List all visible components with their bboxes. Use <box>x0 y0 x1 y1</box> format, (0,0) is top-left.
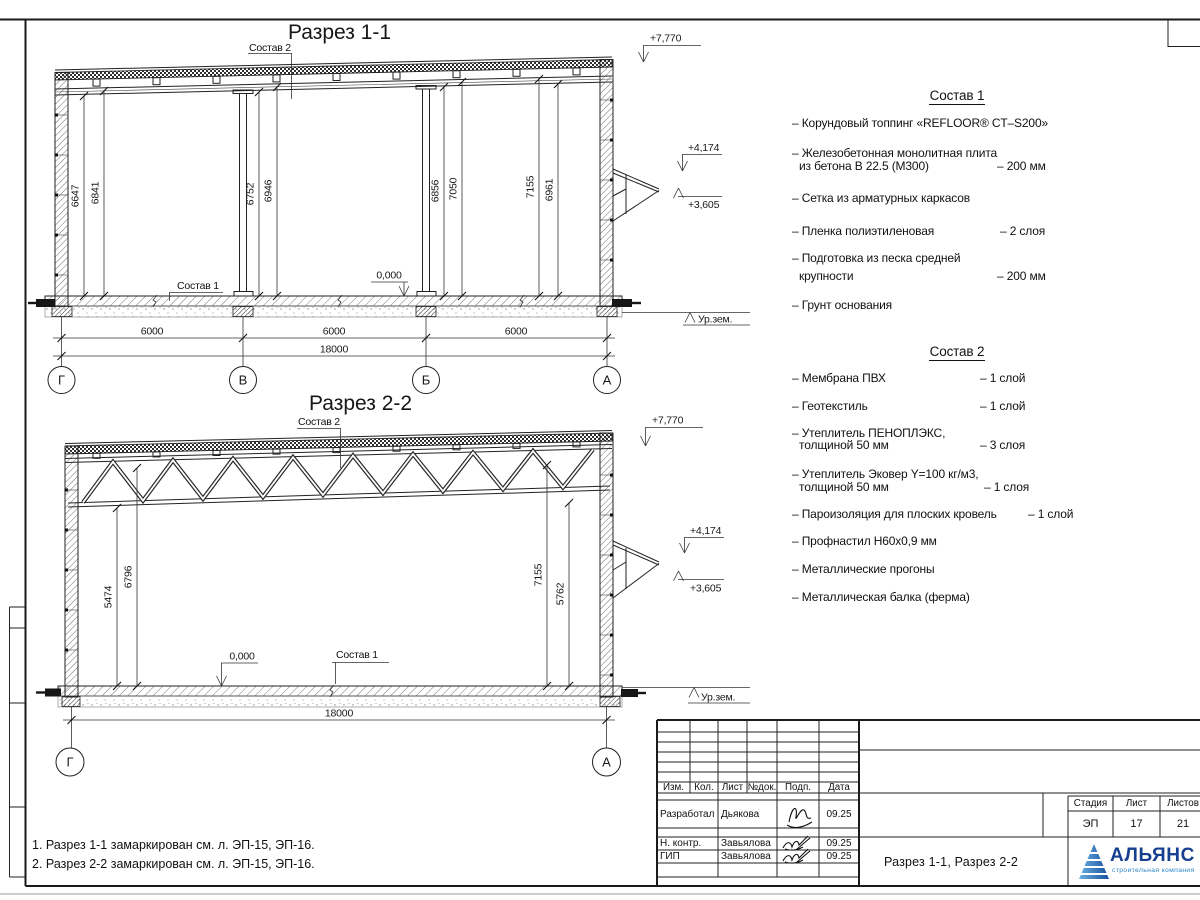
axis-letter: Г <box>58 373 65 388</box>
sand-base <box>58 696 622 707</box>
elevation-text: 0,000 <box>376 270 402 282</box>
axis-letter: Г <box>66 755 73 770</box>
axis-bubbles: Г А <box>56 748 621 776</box>
total-dim: 18000 <box>325 708 354 720</box>
elevation-text: +7,770 <box>652 415 684 427</box>
alliance-logo-icon <box>1078 843 1110 881</box>
total-dim: 18000 <box>320 344 349 356</box>
left-stamp-strip <box>10 607 26 877</box>
axis-letter: Б <box>422 373 431 388</box>
dim-text: 7050 <box>448 177 460 200</box>
ground-level-text: Ур.зем. <box>698 314 732 326</box>
span-dim: 6000 <box>323 326 346 338</box>
dim-text: 5474 <box>103 585 115 608</box>
span-dim: 6000 <box>141 326 164 338</box>
dimension-ticks <box>80 75 562 300</box>
dim-text: 7155 <box>533 563 545 586</box>
floor-slab <box>58 686 622 696</box>
ground-level-text: Ур.зем. <box>701 692 735 704</box>
drawing-sheet: { "sections": { "s1": { "title": "Разрез… <box>0 0 1200 900</box>
section-1-1: 6647 6841 6752 6946 6856 7050 7155 6961 … <box>28 33 750 394</box>
sand-base <box>45 306 622 317</box>
title-block-grid <box>657 720 1200 886</box>
canopy-truss <box>613 541 659 598</box>
axis-letter: В <box>239 373 248 388</box>
elevation-text: +7,770 <box>650 33 682 45</box>
panel-joints <box>65 474 614 677</box>
dim-text: 6647 <box>70 184 82 207</box>
signature-razrabotal <box>787 808 812 827</box>
dim-text: 6841 <box>90 181 102 204</box>
vertical-dimensions: 6647 6841 6752 6946 6856 7050 7155 6961 <box>70 75 563 300</box>
dim-text: 6856 <box>430 179 442 202</box>
axis-dimensions: 6000 6000 6000 18000 Г В Б А <box>48 317 621 394</box>
dim-text: 6946 <box>263 179 275 202</box>
signature-gip <box>783 849 810 863</box>
dim-text: 6961 <box>544 178 556 201</box>
elevation-text: +4,174 <box>688 142 720 154</box>
span-dim: 6000 <box>505 326 528 338</box>
drawing-canvas: .ln{stroke:#222;stroke-width:1;fill:none… <box>0 0 1200 900</box>
axis-dimensions: 18000 Г А <box>56 707 621 776</box>
floor-slab <box>45 296 622 306</box>
section-2-2: 5474 6796 7155 5762 +7,770 +4,174 +3,605 <box>36 415 750 777</box>
elevation-text: +3,605 <box>690 583 722 595</box>
axis-letter: А <box>603 373 612 388</box>
elevation-marks: +7,770 +4,174 +3,605 0,000 Ур.зем. <box>217 415 751 704</box>
dim-text: 5762 <box>555 582 567 605</box>
axis-letter: А <box>602 755 611 770</box>
canopy-truss <box>613 169 659 221</box>
elevation-text: +4,174 <box>690 525 722 537</box>
elevation-text: +3,605 <box>688 199 720 211</box>
elevation-marks: +7,770 +4,174 +3,605 0,000 Ур.зем. <box>371 33 750 326</box>
roof-package <box>55 57 612 95</box>
elevation-text: 0,000 <box>229 651 255 663</box>
signature-nkontr <box>783 836 810 850</box>
dim-text: 7155 <box>525 175 537 198</box>
axis-bubbles: Г В Б А <box>48 367 621 394</box>
vertical-dimensions: 5474 6796 7155 5762 <box>103 461 574 690</box>
roof-truss <box>65 445 612 508</box>
dim-text: 6796 <box>123 565 135 588</box>
dim-text: 6752 <box>245 182 257 205</box>
